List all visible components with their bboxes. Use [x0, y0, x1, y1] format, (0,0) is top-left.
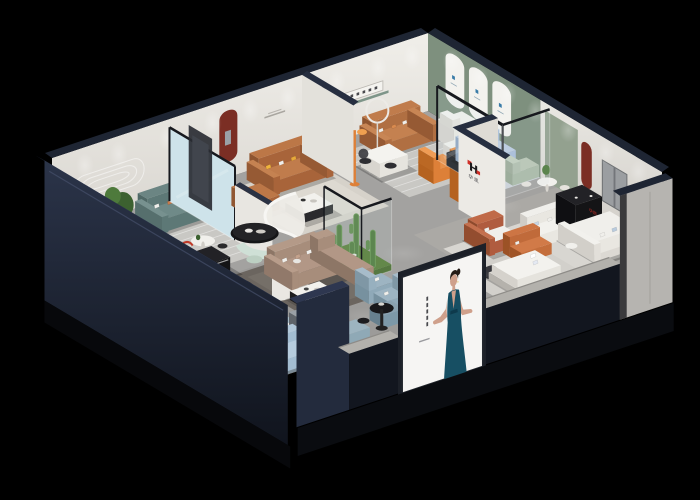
render-stage: H华凯华凯华凯 — [0, 0, 700, 500]
showroom-3d-render: H华凯华凯华凯 — [0, 0, 700, 500]
